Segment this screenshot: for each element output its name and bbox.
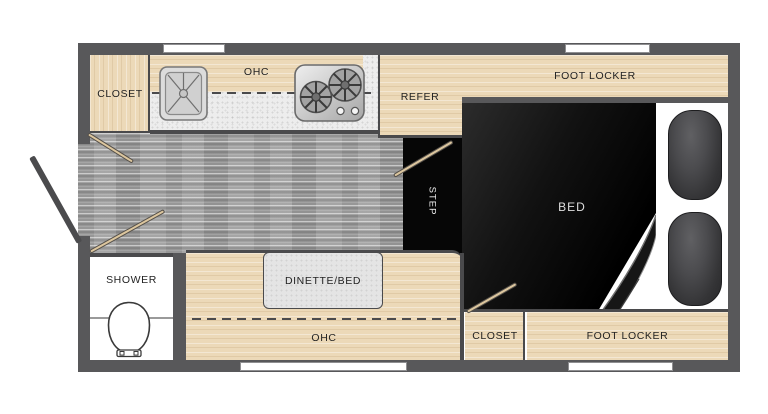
shower-wall-top — [84, 253, 175, 257]
wheel-well-icon — [668, 212, 722, 306]
floor-area — [78, 133, 403, 256]
counter-front-edge — [150, 130, 378, 134]
floor-plan: OHC — [0, 0, 768, 414]
window-icon — [568, 362, 673, 371]
foot-locker-top-label: FOOT LOCKER — [462, 55, 728, 97]
ohc-bottom-label: OHC — [186, 328, 462, 348]
ohc-top-label: OHC — [150, 62, 363, 82]
window-icon — [163, 44, 225, 53]
wall-left-upper — [78, 43, 90, 144]
window-icon — [565, 44, 650, 53]
closet-bottom-label: CLOSET — [465, 312, 525, 360]
step-label: STEP — [398, 172, 468, 231]
wall-right — [728, 43, 740, 372]
dinette-dash-line — [192, 318, 456, 320]
toilet-icon — [104, 301, 154, 358]
dinette-label: DINETTE/BED — [263, 252, 383, 309]
shower-wall-right — [173, 253, 186, 360]
foot-locker-bottom-label: FOOT LOCKER — [527, 312, 728, 360]
wall-left-lower — [78, 236, 90, 372]
refer-label: REFER — [378, 55, 462, 138]
closet-top-label: CLOSET — [90, 55, 150, 133]
window-icon — [240, 362, 407, 371]
shower-label: SHOWER — [90, 272, 173, 288]
entry-door-icon — [30, 155, 83, 243]
wheel-well-icon — [668, 110, 722, 200]
bed-label: BED — [462, 103, 656, 311]
